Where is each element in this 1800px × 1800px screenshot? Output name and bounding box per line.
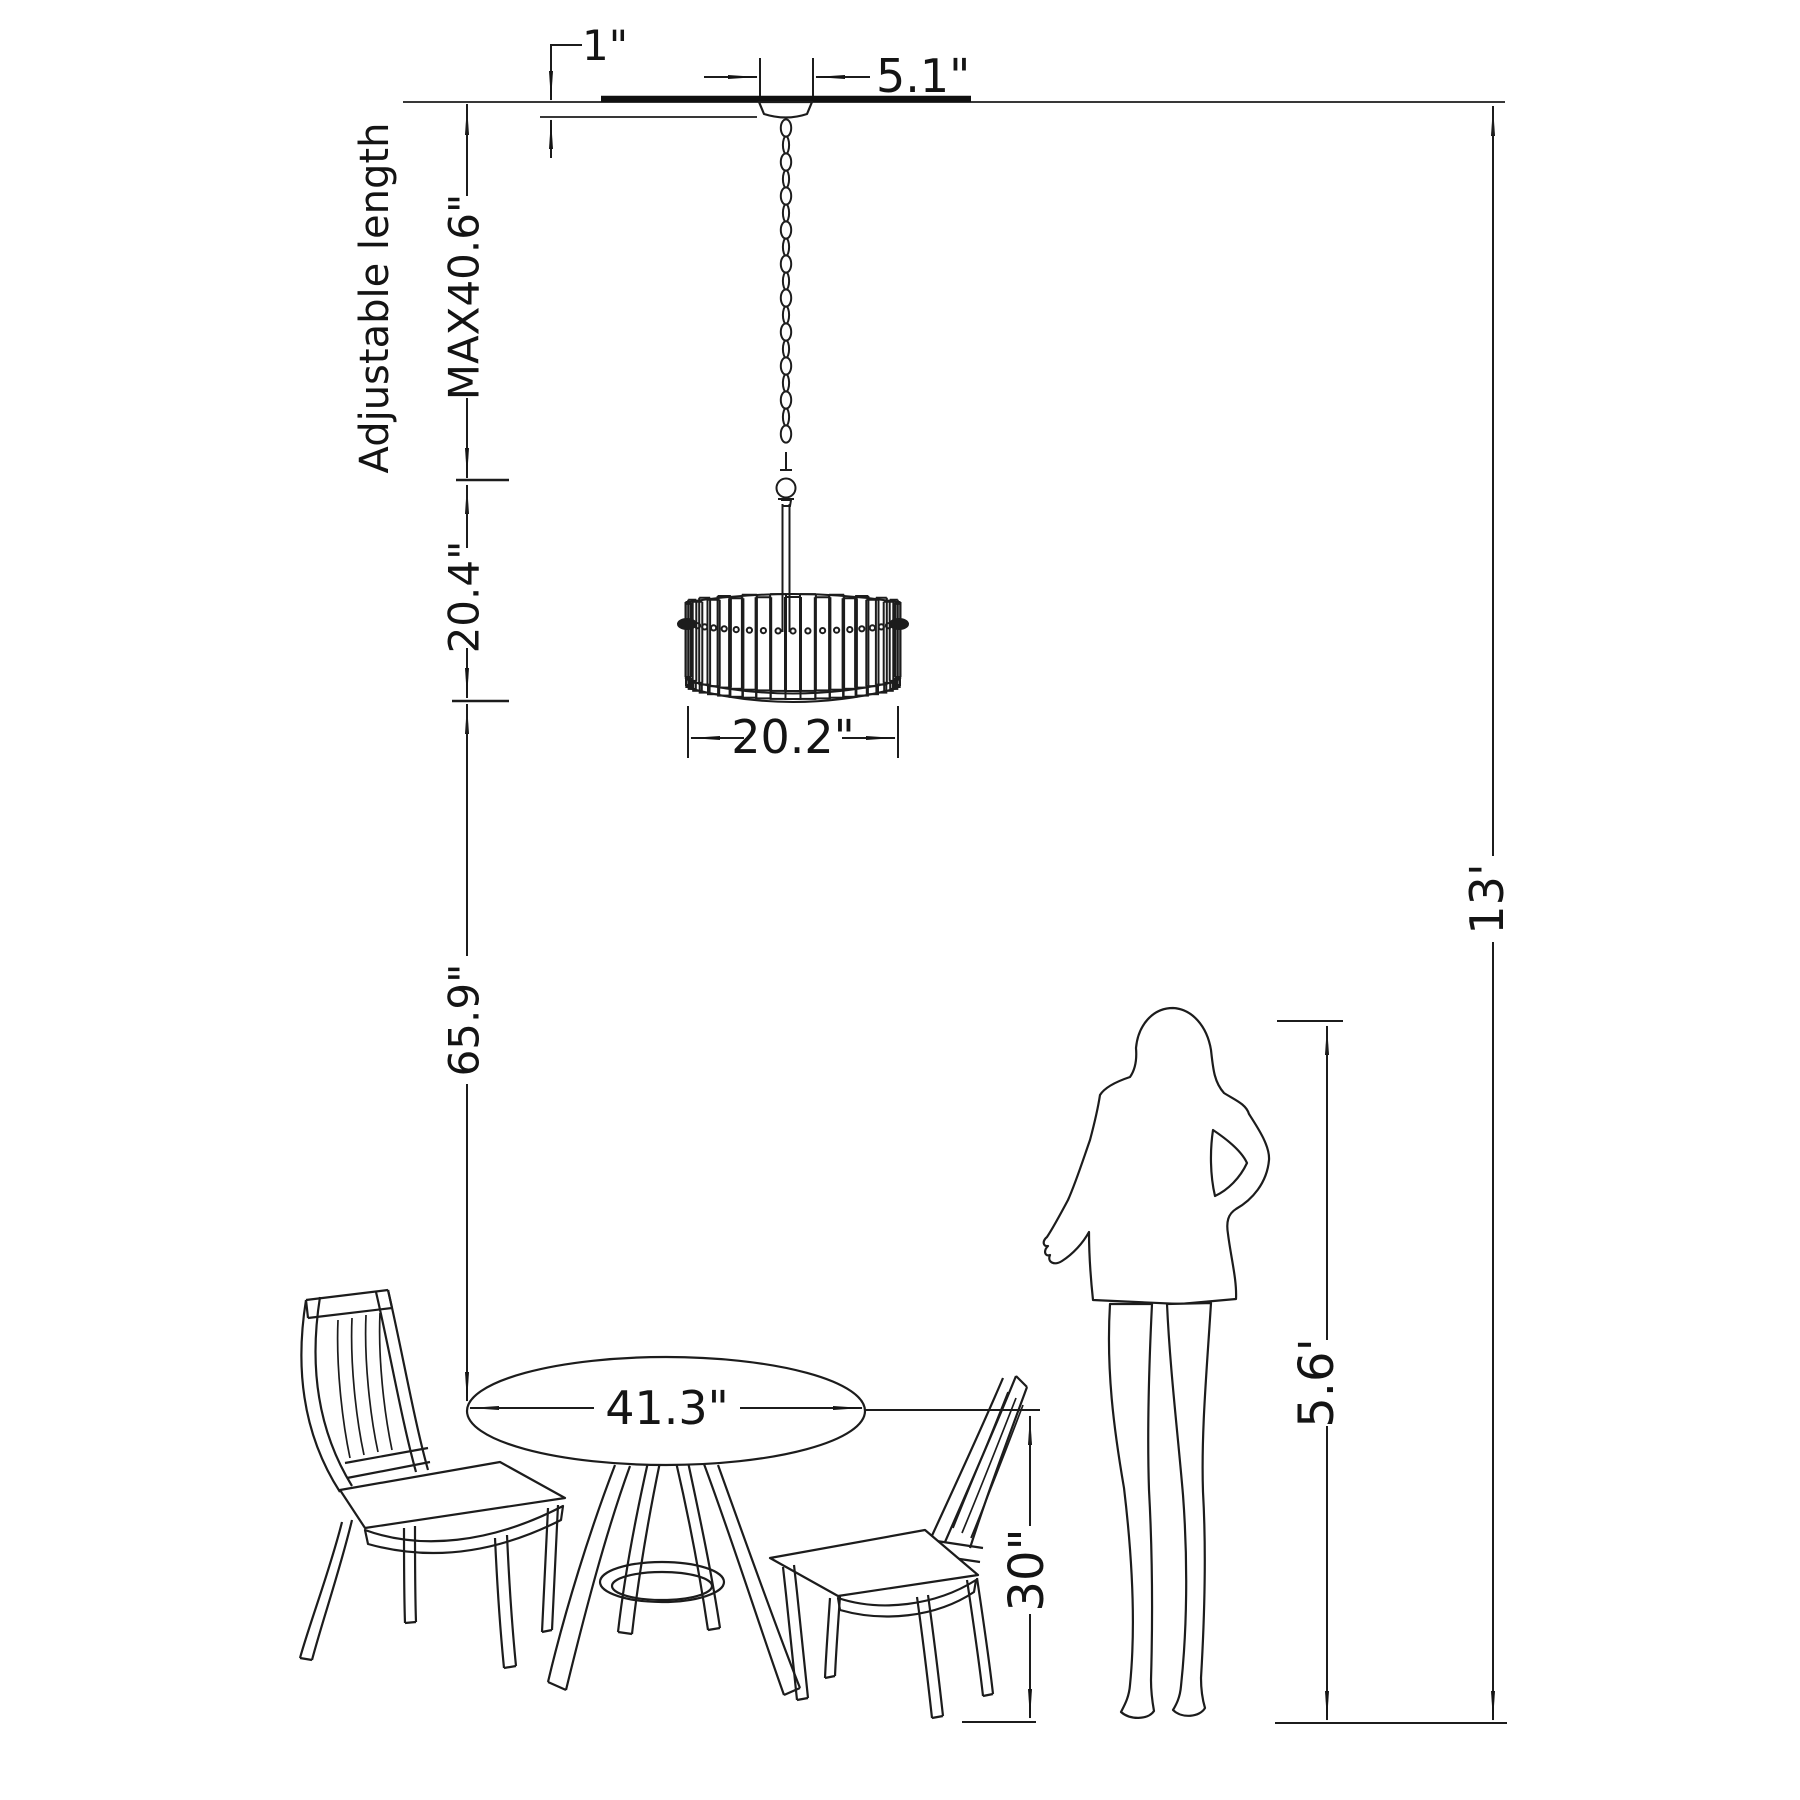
dim-person-height: 5.6' — [1277, 1021, 1345, 1720]
dim-shade-to-table: 65.9" — [440, 704, 489, 1401]
dim-label-table-diameter: 41.3" — [605, 1381, 729, 1435]
dim-label-shade-to-table: 65.9" — [440, 964, 489, 1077]
dim-shade-diameter: 20.2" — [688, 706, 898, 764]
chair-left — [300, 1290, 565, 1668]
dim-label-fixture-height: 20.4" — [440, 541, 489, 654]
person-silhouette — [1044, 1008, 1269, 1718]
chain — [781, 119, 791, 470]
dim-label-shade-diameter: 20.2" — [731, 710, 855, 764]
dimension-diagram: 1" 5.1" Adjustable length MAX40.6" 20.4"… — [0, 0, 1800, 1800]
person-body — [1044, 1008, 1269, 1304]
dim-label-canopy-height: 1" — [582, 21, 628, 70]
dim-canopy-height: 1" — [551, 21, 628, 158]
dim-ceiling-height: 13' — [1275, 106, 1514, 1723]
canopy — [759, 102, 812, 118]
dim-label-max-drop: MAX40.6" — [440, 194, 489, 401]
dim-fixture-height: 20.4" — [440, 485, 509, 701]
pendant-lamp — [678, 102, 908, 702]
dim-label-ceiling-height: 13' — [1460, 863, 1514, 934]
dim-label-table-height: 30" — [999, 1528, 1055, 1611]
person-left-leg — [1109, 1304, 1154, 1718]
pedestal-ring — [600, 1562, 724, 1602]
dim-label-person-height: 5.6' — [1289, 1338, 1345, 1428]
person-right-leg — [1167, 1303, 1211, 1716]
dim-canopy-width: 5.1" — [704, 49, 970, 103]
dim-label-adjustable-length: Adjustable length — [352, 123, 398, 474]
drum-shade — [678, 594, 908, 702]
diagram-canvas: 1" 5.1" Adjustable length MAX40.6" 20.4"… — [0, 0, 1800, 1800]
dim-table-height: 30" — [962, 1416, 1055, 1722]
dim-adjustable-length: Adjustable length MAX40.6" — [352, 104, 509, 480]
dim-label-canopy-width: 5.1" — [876, 49, 970, 103]
chain-connector — [777, 470, 796, 506]
